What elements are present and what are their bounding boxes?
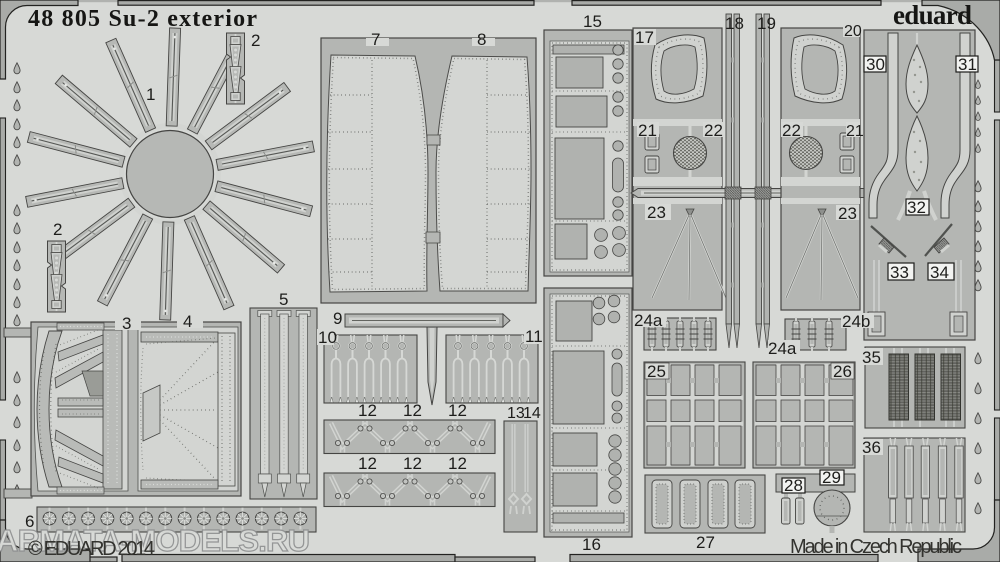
- svg-text:9: 9: [333, 309, 342, 328]
- svg-text:22: 22: [704, 121, 723, 140]
- svg-text:22: 22: [782, 121, 801, 140]
- svg-text:26: 26: [833, 362, 852, 381]
- svg-text:19: 19: [757, 14, 776, 33]
- svg-text:25: 25: [647, 362, 666, 381]
- svg-text:31: 31: [958, 55, 977, 74]
- svg-text:34: 34: [930, 263, 949, 282]
- svg-text:21: 21: [638, 121, 657, 140]
- svg-text:24a: 24a: [634, 311, 663, 330]
- svg-text:1: 1: [146, 85, 155, 104]
- svg-text:© EDUARD 2014: © EDUARD 2014: [28, 538, 155, 560]
- svg-text:Made in Czech Republic: Made in Czech Republic: [790, 536, 962, 558]
- svg-text:20: 20: [844, 23, 862, 40]
- svg-text:10: 10: [318, 328, 337, 347]
- svg-text:21: 21: [846, 123, 864, 140]
- svg-text:35: 35: [862, 348, 881, 367]
- svg-text:27: 27: [696, 533, 715, 552]
- svg-text:5: 5: [279, 290, 288, 309]
- svg-text:3: 3: [122, 314, 131, 333]
- svg-text:12: 12: [358, 454, 377, 473]
- svg-text:7: 7: [371, 30, 380, 49]
- svg-text:12: 12: [448, 401, 467, 420]
- svg-text:24a: 24a: [768, 339, 797, 358]
- svg-text:29: 29: [822, 468, 841, 487]
- svg-text:36: 36: [862, 438, 881, 457]
- svg-text:32: 32: [907, 198, 926, 217]
- svg-text:23: 23: [647, 203, 666, 222]
- svg-text:17: 17: [635, 28, 654, 47]
- svg-text:23: 23: [838, 204, 857, 223]
- svg-text:12: 12: [403, 401, 422, 420]
- svg-text:12: 12: [403, 454, 422, 473]
- svg-text:28: 28: [784, 476, 803, 495]
- svg-text:eduard: eduard: [893, 0, 972, 30]
- svg-text:16: 16: [582, 535, 601, 554]
- svg-text:2: 2: [251, 31, 260, 50]
- svg-text:48 805 Su-2 exterior: 48 805 Su-2 exterior: [28, 6, 257, 32]
- svg-text:30: 30: [866, 55, 885, 74]
- svg-text:4: 4: [183, 312, 192, 331]
- svg-text:15: 15: [583, 12, 602, 31]
- svg-text:18: 18: [725, 14, 744, 33]
- svg-text:24b: 24b: [842, 312, 870, 331]
- svg-text:14: 14: [523, 405, 541, 422]
- svg-text:2: 2: [53, 220, 62, 239]
- svg-text:33: 33: [890, 263, 909, 282]
- svg-text:12: 12: [358, 401, 377, 420]
- svg-text:8: 8: [477, 30, 486, 49]
- svg-text:12: 12: [448, 454, 467, 473]
- svg-text:11: 11: [525, 327, 543, 346]
